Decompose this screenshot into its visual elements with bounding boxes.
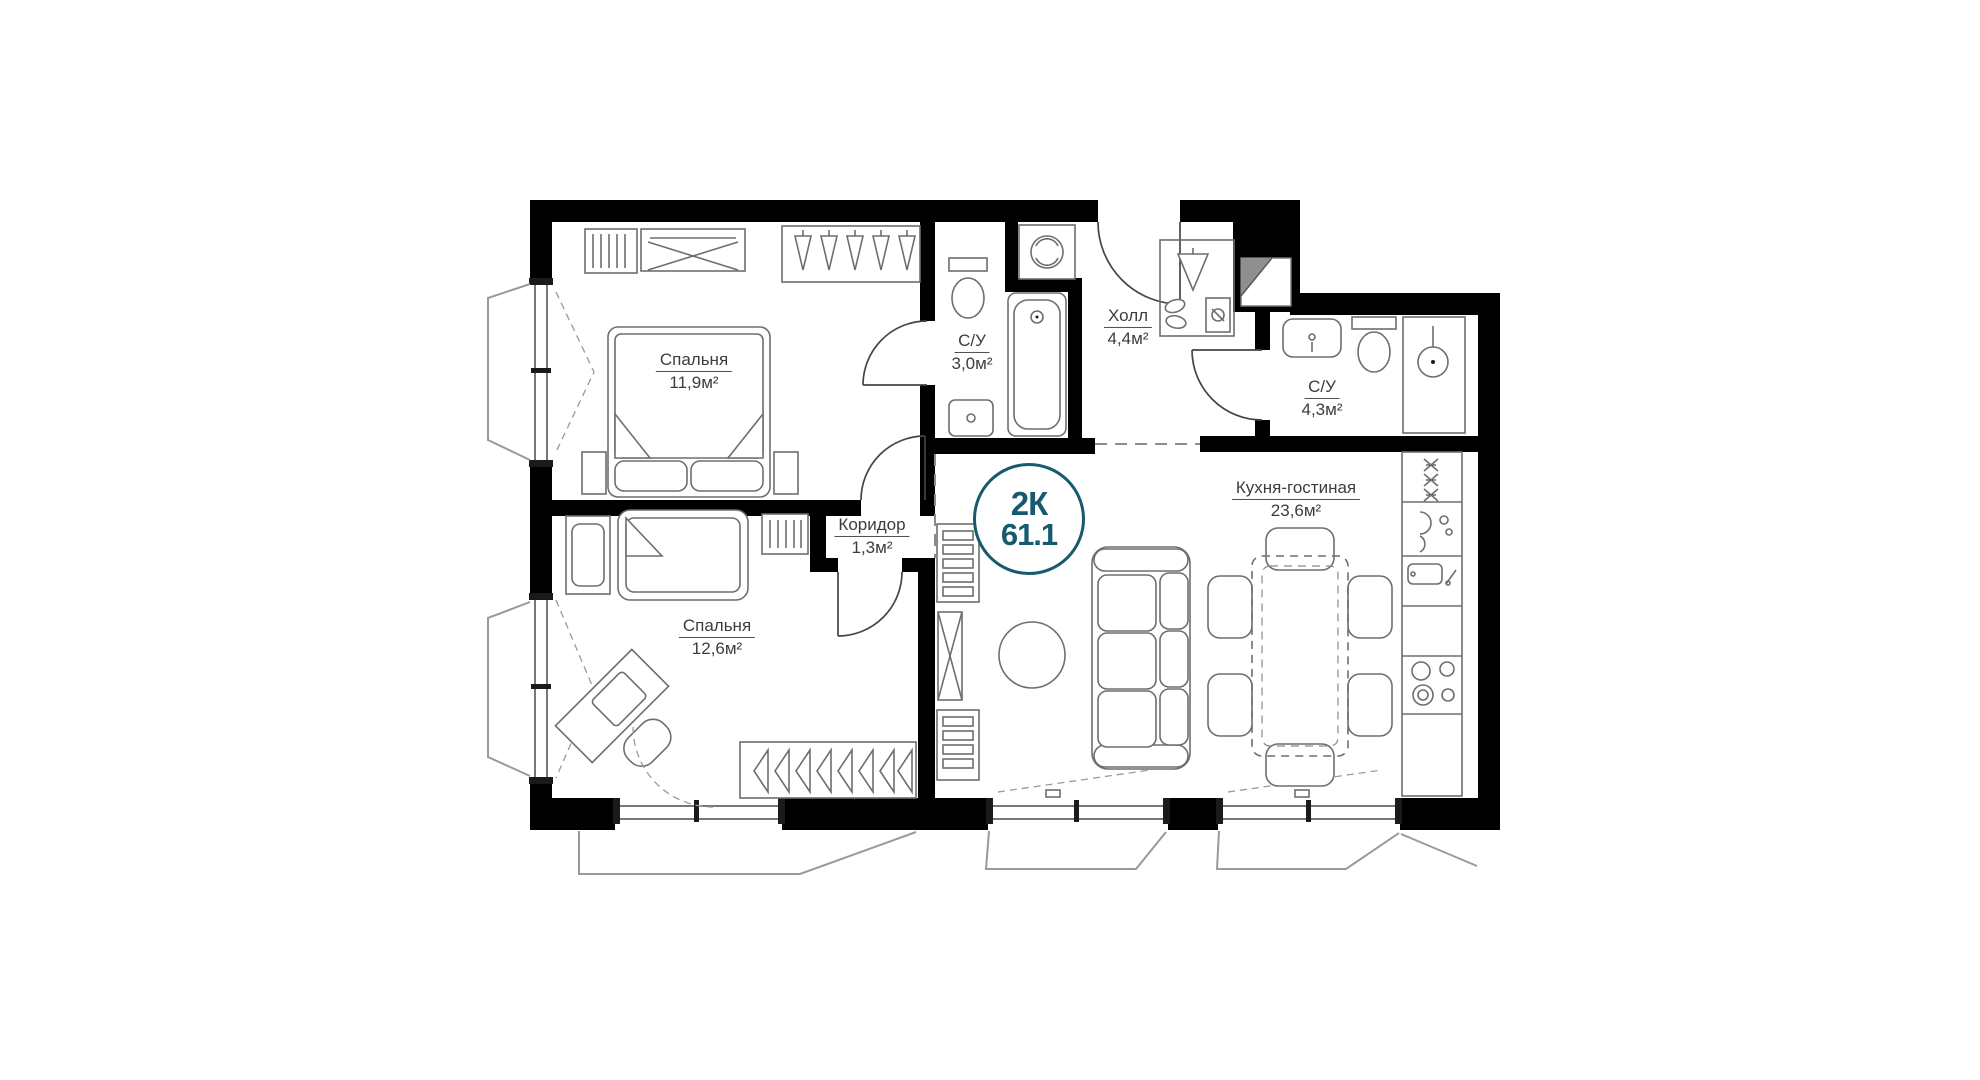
entry-door-icon xyxy=(1098,222,1180,304)
desk-icon xyxy=(641,229,745,271)
dresser-icon xyxy=(585,229,637,273)
room-name: Спальня xyxy=(656,350,732,372)
window-kitchen-1-icon xyxy=(986,770,1170,832)
bathroom-2-door-icon xyxy=(1192,350,1262,420)
badge-type-label: 2К xyxy=(1011,488,1048,519)
furniture-bedroom-1 xyxy=(582,226,920,497)
room-label-kitchen-living: Кухня-гостиная 23,6м² xyxy=(1232,478,1360,520)
desk-chair-icon xyxy=(555,649,698,792)
room-area: 23,6м² xyxy=(1232,501,1360,520)
room-name: С/У xyxy=(954,331,990,353)
dining-set-icon xyxy=(1208,528,1392,786)
nightstand-icon xyxy=(566,516,610,594)
sink-icon xyxy=(1283,319,1341,357)
room-name: Кухня-гостиная xyxy=(1232,478,1360,500)
toilet-icon xyxy=(1352,317,1396,372)
room-name: Спальня xyxy=(679,616,755,638)
room-area: 12,6м² xyxy=(679,639,755,658)
bathroom-1-door-icon xyxy=(863,321,927,385)
wardrobe-icon xyxy=(740,742,916,798)
window-bedroom-1-icon xyxy=(527,278,594,467)
fridge-icon xyxy=(1424,459,1438,501)
room-label-bedroom-1: Спальня 11,9м² xyxy=(656,350,732,392)
round-table-icon xyxy=(999,622,1065,688)
window-bedroom-2-south-icon xyxy=(613,796,785,832)
bedroom-2-door-icon xyxy=(838,572,902,636)
room-area: 1,3м² xyxy=(834,538,909,557)
room-name: Коридор xyxy=(834,515,909,537)
bedroom-1-door-icon xyxy=(861,436,925,500)
room-area: 3,0м² xyxy=(952,354,993,373)
room-area: 4,4м² xyxy=(1104,329,1152,348)
plan-type-badge: 2К 61.1 xyxy=(973,463,1085,575)
room-label-bedroom-2: Спальня 12,6м² xyxy=(679,616,755,658)
bathtub-icon xyxy=(1008,293,1066,436)
wardrobe-icon xyxy=(782,226,920,282)
sink-icon xyxy=(949,400,993,436)
stove-icon xyxy=(1412,662,1454,705)
room-label-bathroom-2: С/У 4,3м² xyxy=(1302,377,1343,419)
tv-stand-icon xyxy=(937,524,979,780)
badge-area-value: 61.1 xyxy=(1001,519,1057,550)
entry-closet-icon xyxy=(1160,240,1234,336)
room-label-bathroom-1: С/У 3,0м² xyxy=(952,331,993,373)
room-name: Холл xyxy=(1104,306,1152,328)
toilet-icon xyxy=(949,258,987,318)
sofa-icon xyxy=(1092,547,1190,769)
room-area: 11,9м² xyxy=(656,373,732,392)
counter-basin-icon xyxy=(1408,564,1456,585)
room-area: 4,3м² xyxy=(1302,400,1343,419)
washing-machine-icon xyxy=(1019,225,1075,279)
room-label-corridor: Коридор 1,3м² xyxy=(834,515,909,557)
shower-icon xyxy=(1403,317,1465,433)
single-bed-icon xyxy=(618,510,748,600)
kitchen-sink-icon xyxy=(1420,512,1452,552)
vent-shaft-icon xyxy=(1241,258,1291,306)
floor-plan-canvas: Спальня 11,9м² С/У 3,0м² Холл 4,4м² С/У … xyxy=(0,0,1980,1080)
room-name: С/У xyxy=(1304,377,1340,399)
dresser-icon xyxy=(762,514,808,554)
room-label-hall: Холл 4,4м² xyxy=(1104,306,1152,348)
kitchen-units-icon xyxy=(1402,452,1462,796)
